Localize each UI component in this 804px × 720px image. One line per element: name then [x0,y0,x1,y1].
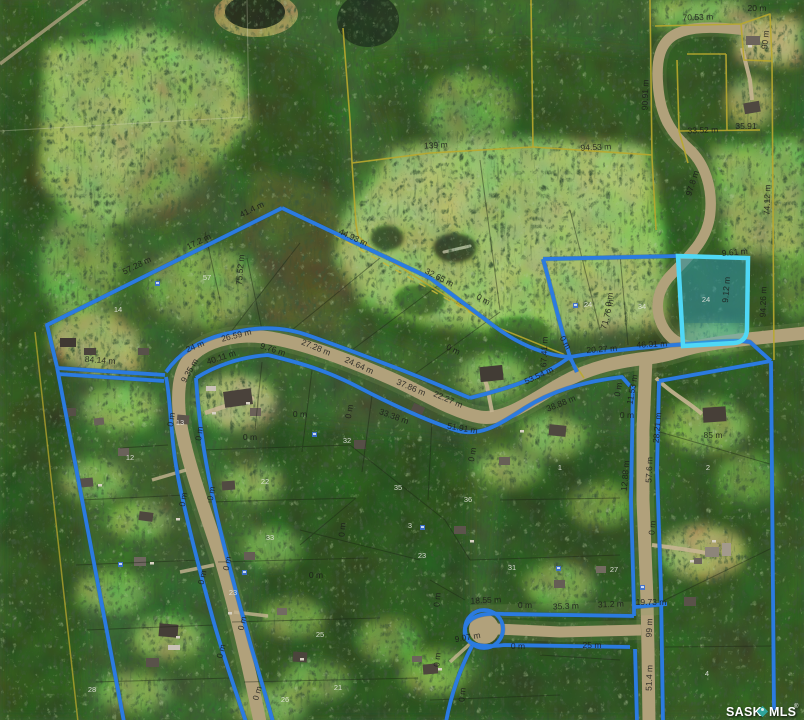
svg-text:22: 22 [261,477,269,486]
svg-text:46.01 m: 46.01 m [636,338,667,350]
svg-text:20 m: 20 m [748,3,767,13]
svg-text:31: 31 [508,563,516,572]
svg-text:0 m: 0 m [431,652,442,667]
svg-text:99 m: 99 m [644,618,655,637]
svg-text:23: 23 [229,588,237,597]
svg-text:0 m: 0 m [336,522,347,537]
svg-text:57.6 m: 57.6 m [643,457,654,483]
svg-text:31.2 m: 31.2 m [598,599,624,610]
svg-text:1: 1 [558,463,562,472]
svg-text:74.12 m: 74.12 m [761,184,772,215]
svg-text:0 m: 0 m [620,410,634,420]
svg-text:33.52 m: 33.52 m [687,124,718,135]
svg-text:18.55 m: 18.55 m [470,594,501,606]
svg-text:35.91: 35.91 [735,121,757,131]
svg-text:0 m: 0 m [243,432,257,442]
svg-text:27: 27 [610,565,618,574]
svg-text:28: 28 [88,685,96,694]
svg-text:24: 24 [702,295,710,304]
svg-text:4: 4 [705,669,709,678]
svg-text:94.53 m: 94.53 m [580,141,611,153]
svg-text:85 m: 85 m [704,430,723,440]
svg-text:21: 21 [334,683,342,692]
svg-text:90.91 m: 90.91 m [639,79,650,110]
svg-text:MLS: MLS [769,705,796,719]
svg-text:3: 3 [408,521,412,530]
svg-text:2: 2 [706,463,710,472]
svg-text:14: 14 [114,305,122,314]
svg-text:12: 12 [126,453,134,462]
svg-text:34: 34 [638,302,646,311]
svg-text:25: 25 [316,630,324,639]
svg-text:0 m: 0 m [518,600,532,610]
svg-text:90 m: 90 m [759,30,771,50]
svg-text:94.26 m: 94.26 m [757,286,768,317]
svg-text:84.14 m: 84.14 m [85,354,116,366]
svg-text:0 m: 0 m [646,520,657,535]
svg-text:19.73 m: 19.73 m [636,597,667,607]
svg-text:0 m: 0 m [293,409,307,419]
svg-text:0 m: 0 m [456,687,467,702]
svg-text:0 m: 0 m [309,570,323,580]
svg-text:35.3 m: 35.3 m [553,601,579,612]
svg-text:0 m: 0 m [431,592,442,607]
svg-text:51.4 m: 51.4 m [644,665,655,691]
svg-text:26: 26 [281,695,289,704]
svg-text:67.41 m: 67.41 m [538,336,550,367]
svg-text:20.27 m: 20.27 m [586,343,617,355]
svg-text:24: 24 [584,300,592,309]
svg-text:33: 33 [266,533,274,542]
svg-text:70.53 m: 70.53 m [682,11,713,22]
svg-text:0 m: 0 m [511,641,525,651]
svg-text:23: 23 [418,551,426,560]
svg-text:57: 57 [203,273,211,282]
svg-text:®: ® [794,703,799,710]
svg-text:SASK: SASK [726,705,762,719]
svg-text:0 m: 0 m [193,426,205,441]
svg-text:13: 13 [176,418,184,427]
svg-text:139 m: 139 m [424,139,448,150]
svg-text:32: 32 [343,436,351,445]
svg-text:35: 35 [394,483,402,492]
svg-text:36: 36 [464,495,472,504]
svg-text:25 m: 25 m [583,640,602,650]
